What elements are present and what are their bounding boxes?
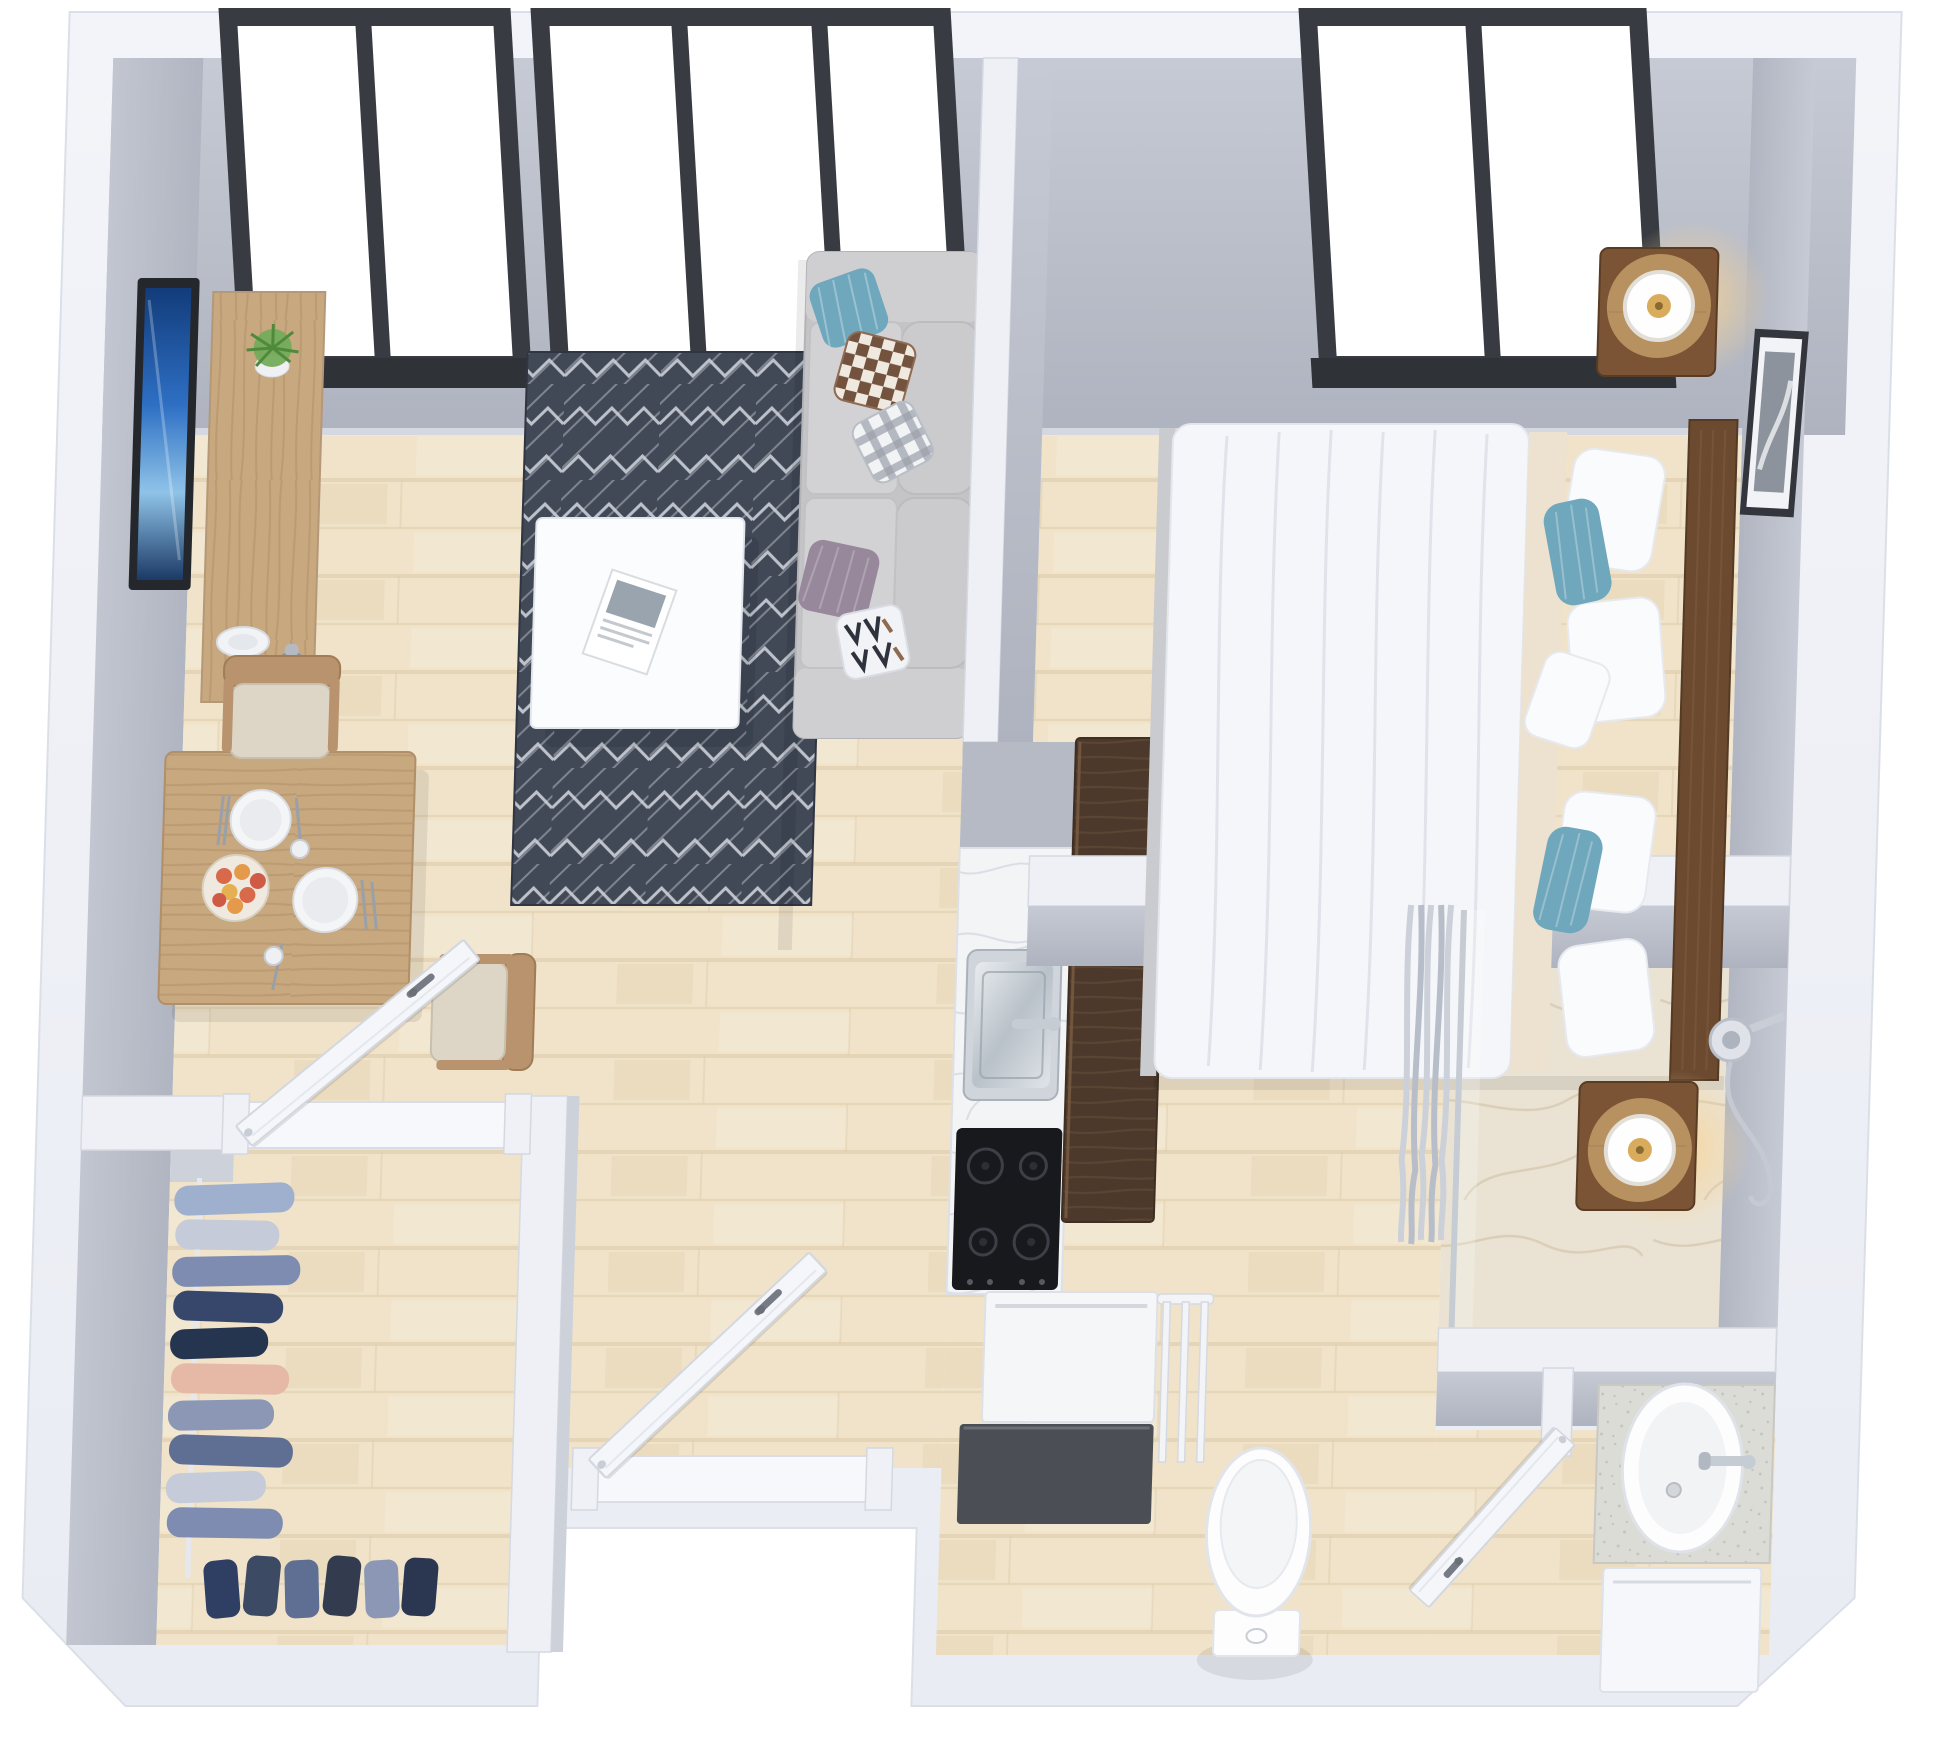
floor-plan-render [0, 0, 1936, 1744]
shower-south-wall [1437, 1328, 1776, 1372]
drain [1667, 1483, 1681, 1497]
tv [128, 278, 199, 590]
closet-door-jamb [504, 1094, 532, 1154]
decor-plate [217, 627, 270, 657]
apartment [19, 8, 1901, 1706]
cooktop [952, 1128, 1063, 1290]
geometric-pillow [835, 603, 912, 681]
kitchen-sink [963, 950, 1062, 1100]
dinner-plate [292, 868, 358, 932]
glass [291, 840, 310, 858]
dinner-plate [230, 790, 292, 850]
entry-door-jamb [865, 1448, 893, 1510]
dining-chair-north [222, 656, 341, 758]
dining-table [158, 752, 430, 1022]
coffee-table [530, 518, 760, 747]
vanity-cabinet [1600, 1568, 1762, 1692]
glass [264, 947, 283, 965]
closet-north-wall [81, 1096, 236, 1150]
appliance-front [982, 1292, 1158, 1422]
vanity [1590, 1384, 1775, 1692]
fruit-bowl [202, 855, 270, 921]
kitchen-knee-wall [960, 742, 1076, 854]
media-console [201, 292, 325, 702]
floor-plan-canvas [0, 0, 1936, 1744]
base-cabinet [957, 1424, 1154, 1524]
closet-north-wall-face [170, 1150, 234, 1182]
